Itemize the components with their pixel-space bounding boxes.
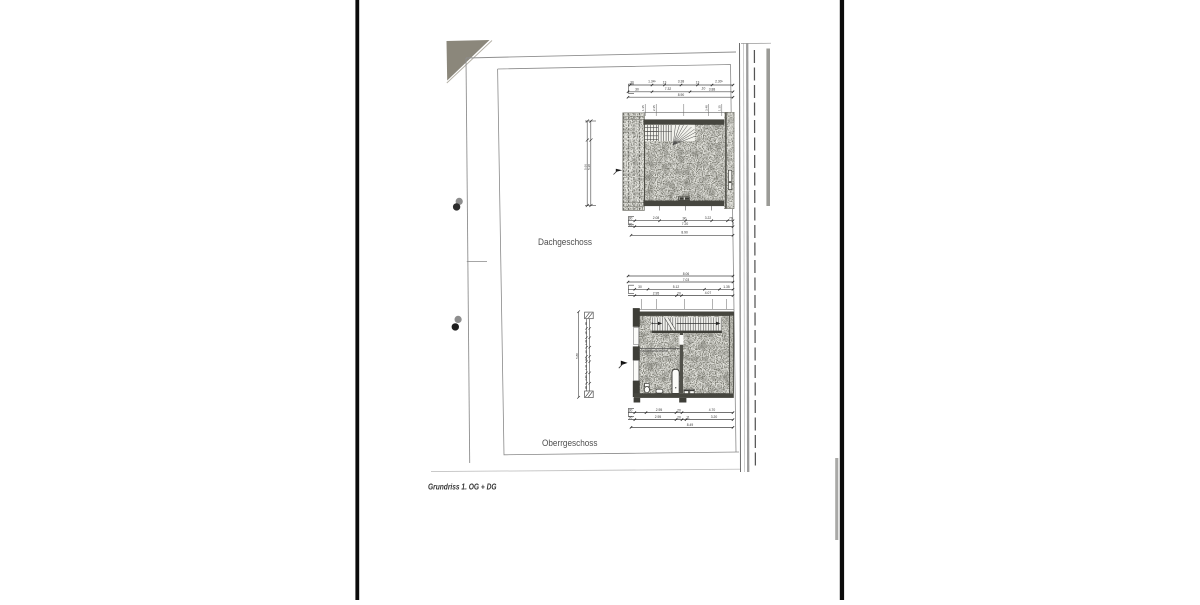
svg-text:.90: .90 <box>682 217 687 221</box>
svg-text:Grundriss 1. OG + DG: Grundriss 1. OG + DG <box>428 483 497 492</box>
svg-text:10: 10 <box>584 350 588 353</box>
svg-text:3.38: 3.38 <box>678 80 685 84</box>
svg-text:1.35: 1.35 <box>723 285 730 289</box>
svg-text:18: 18 <box>584 331 588 334</box>
svg-text:2.35: 2.35 <box>652 105 656 111</box>
svg-text:8.49: 8.49 <box>687 423 694 427</box>
svg-text:4.70: 4.70 <box>709 408 716 412</box>
svg-text:5.12: 5.12 <box>673 285 680 289</box>
svg-text:Oberrgeschoss: Oberrgeschoss <box>542 438 598 448</box>
svg-text:13: 13 <box>696 80 700 84</box>
svg-text:Dachgeschoss: Dachgeschoss <box>538 237 593 247</box>
svg-text:1.35: 1.35 <box>584 364 588 370</box>
svg-text:30: 30 <box>629 409 633 413</box>
svg-text:3.88: 3.88 <box>709 88 716 92</box>
svg-text:2.95: 2.95 <box>653 291 660 295</box>
svg-text:5.28: 5.28 <box>587 164 591 170</box>
svg-text:.11: .11 <box>685 415 690 419</box>
svg-text:4.07: 4.07 <box>705 291 712 295</box>
svg-text:1.35: 1.35 <box>641 105 645 111</box>
svg-text:3.20: 3.20 <box>711 415 718 419</box>
svg-text:1.35: 1.35 <box>718 105 722 111</box>
svg-text:7.32: 7.32 <box>665 87 672 91</box>
svg-text:3.48: 3.48 <box>704 105 708 111</box>
svg-text:3.22: 3.22 <box>705 216 712 220</box>
svg-text:8.90: 8.90 <box>681 231 688 235</box>
svg-text:30: 30 <box>630 80 634 84</box>
svg-text:30: 30 <box>635 88 639 92</box>
svg-text:30: 30 <box>629 416 633 420</box>
svg-text:2.08: 2.08 <box>653 216 660 220</box>
svg-text:30: 30 <box>629 222 633 226</box>
svg-text:20: 20 <box>677 415 681 419</box>
svg-text:20: 20 <box>677 409 681 413</box>
svg-text:.76: .76 <box>728 217 733 221</box>
svg-text:90: 90 <box>584 322 588 325</box>
svg-text:30: 30 <box>638 285 642 289</box>
svg-text:7.20: 7.20 <box>682 222 689 226</box>
svg-text:.10: .10 <box>701 86 706 90</box>
svg-text:7.03: 7.03 <box>683 278 690 282</box>
svg-text:2.95: 2.95 <box>655 415 662 419</box>
svg-text:2.95: 2.95 <box>656 408 663 412</box>
svg-text:3: 3 <box>732 222 734 226</box>
svg-text:5.88: 5.88 <box>575 353 579 359</box>
svg-text:8.06: 8.06 <box>683 272 690 276</box>
svg-text:20: 20 <box>677 292 681 296</box>
svg-text:52: 52 <box>584 357 588 360</box>
svg-text:13: 13 <box>663 80 667 84</box>
svg-text:30: 30 <box>629 217 633 221</box>
svg-text:1.35: 1.35 <box>584 339 588 345</box>
svg-text:2.86: 2.86 <box>584 375 588 381</box>
svg-text:96: 96 <box>584 386 588 389</box>
svg-text:8.90: 8.90 <box>678 93 685 97</box>
